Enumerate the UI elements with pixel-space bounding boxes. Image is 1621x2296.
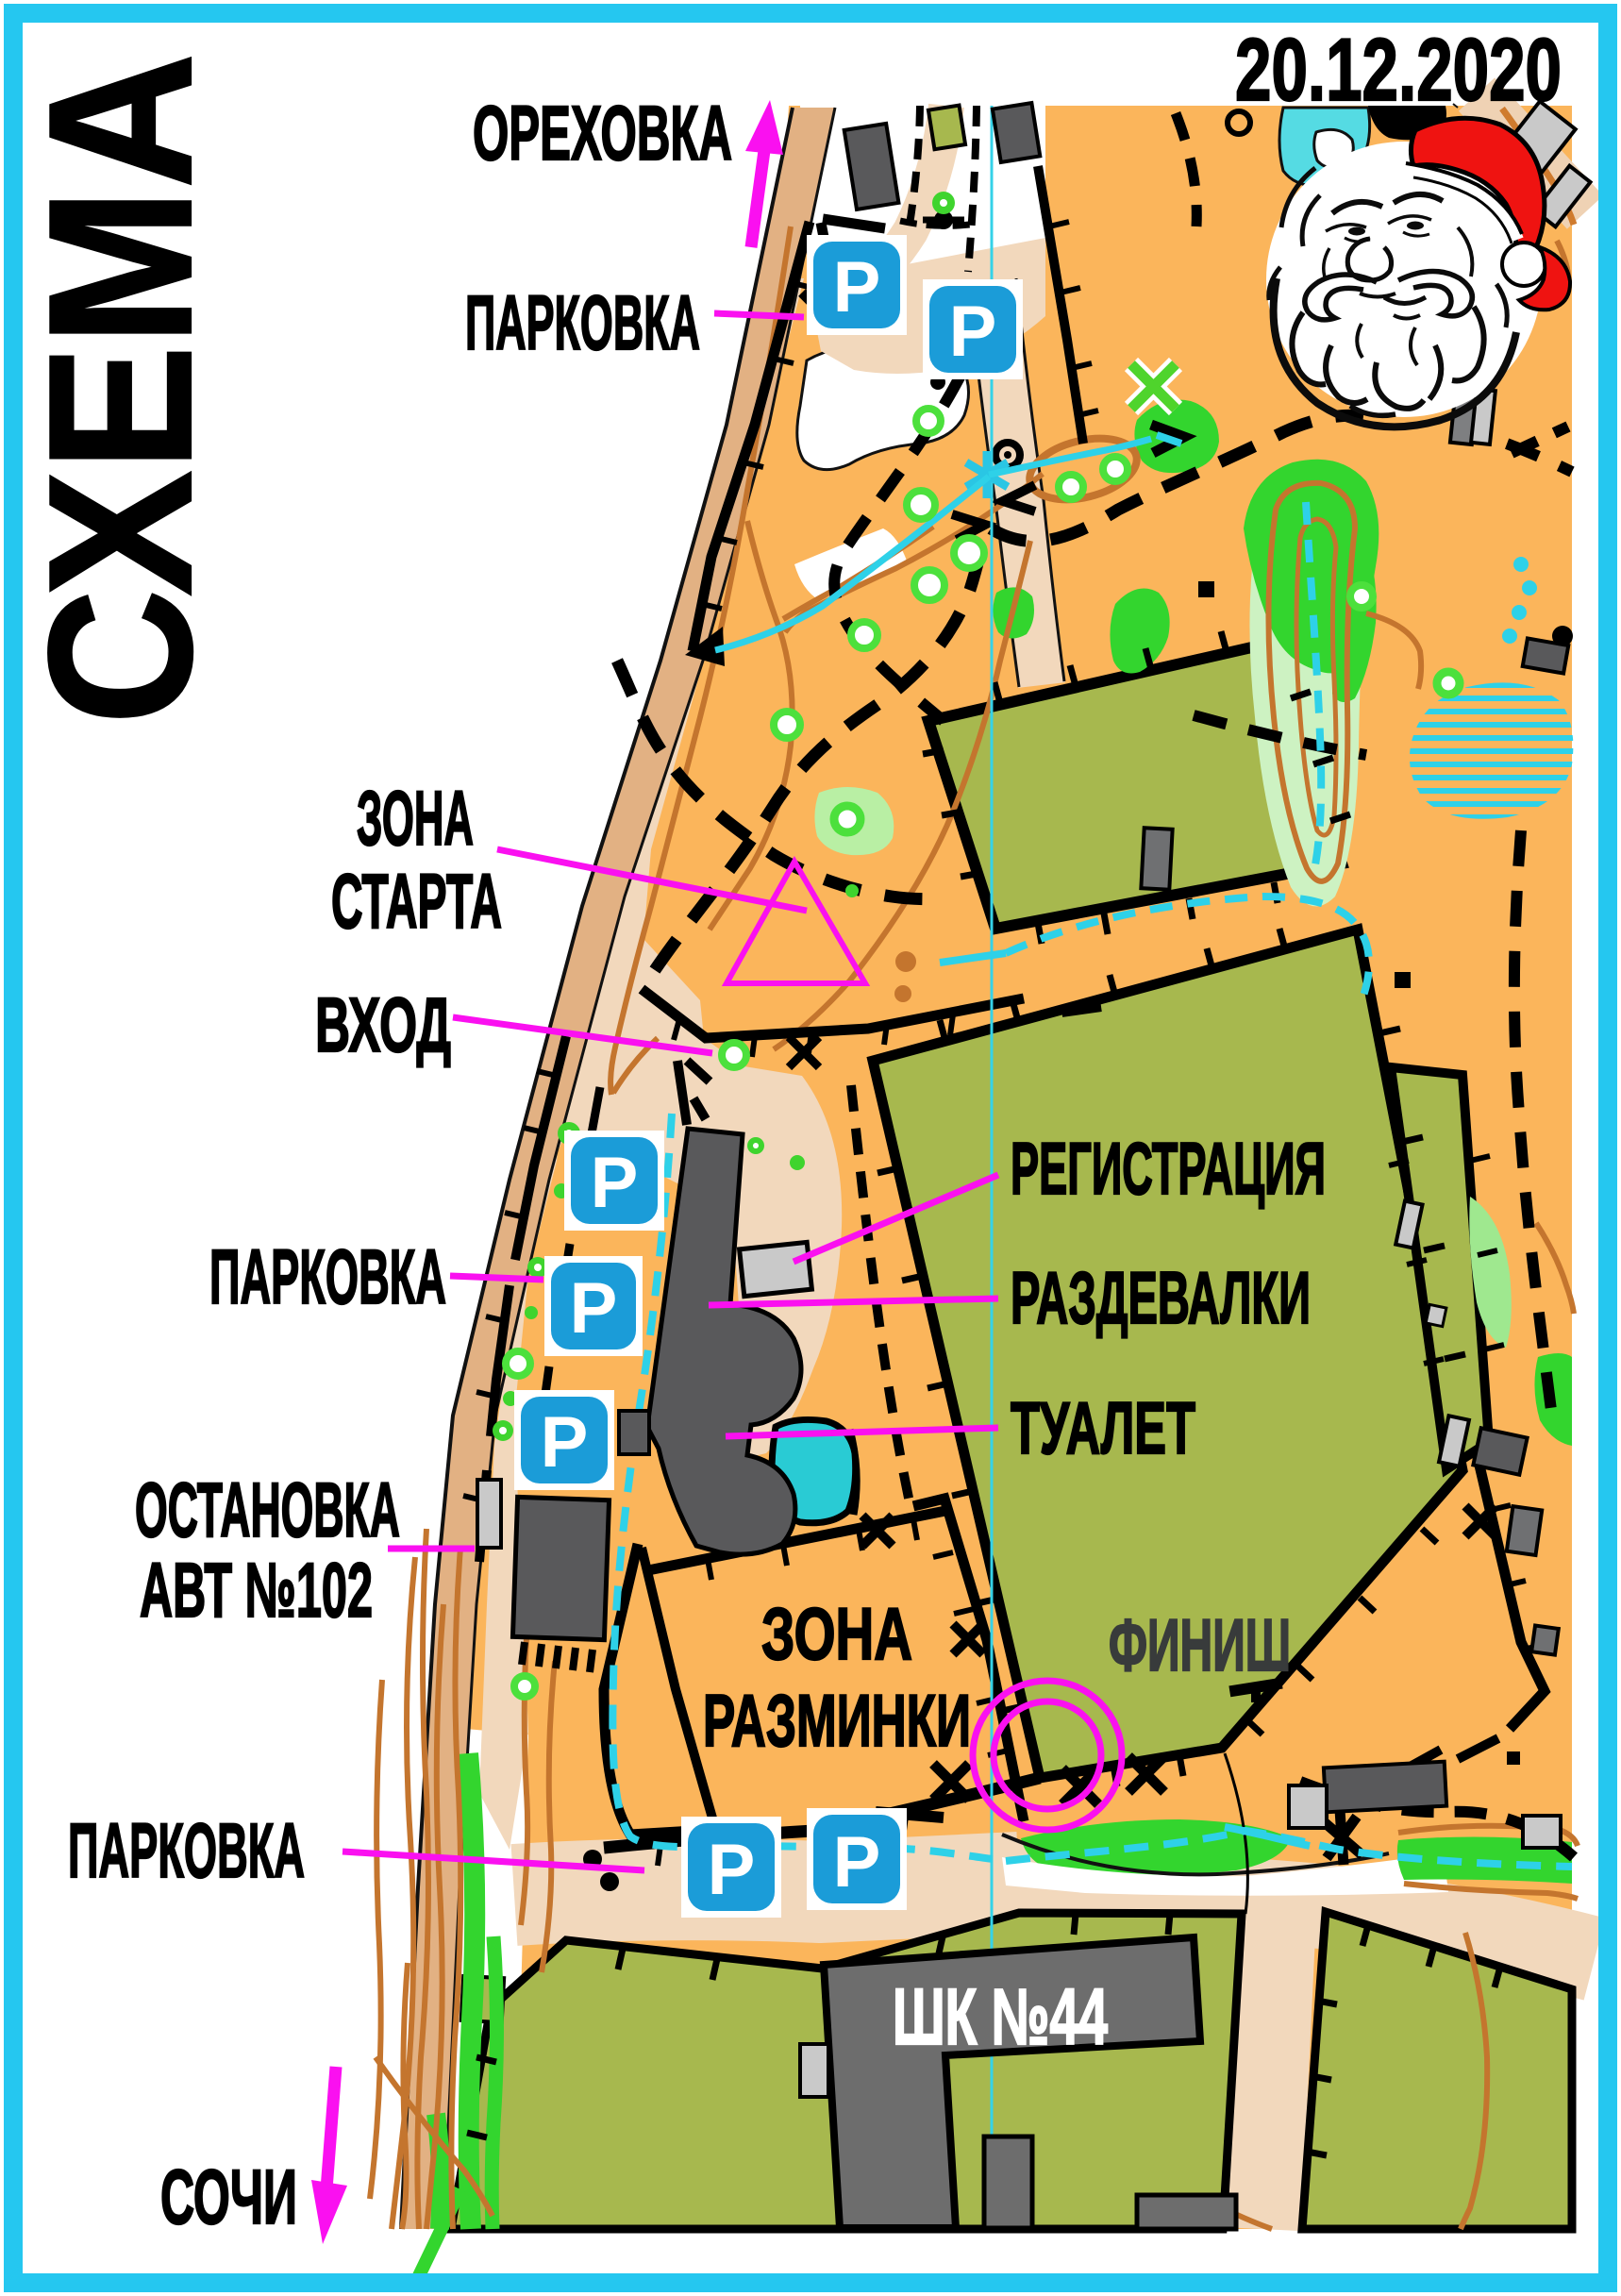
svg-text:ЗОНА: ЗОНА bbox=[761, 1592, 912, 1675]
svg-text:АВТ №102: АВТ №102 bbox=[140, 1548, 373, 1634]
svg-text:РЕГИСТРАЦИЯ: РЕГИСТРАЦИЯ bbox=[1011, 1127, 1326, 1210]
svg-text:ПАРКОВКА: ПАРКОВКА bbox=[209, 1234, 446, 1320]
svg-text:ПАРКОВКА: ПАРКОВКА bbox=[465, 280, 700, 366]
svg-text:ОСТАНОВКА: ОСТАНОВКА bbox=[135, 1467, 400, 1553]
svg-text:РАЗДЕВАЛКИ: РАЗДЕВАЛКИ bbox=[1011, 1256, 1311, 1339]
svg-text:СХЕМА: СХЕМА bbox=[6, 53, 234, 725]
svg-text:ЗОНА: ЗОНА bbox=[357, 776, 474, 862]
svg-text:20.12.2020: 20.12.2020 bbox=[1235, 20, 1562, 119]
svg-text:P: P bbox=[949, 292, 997, 372]
svg-text:ШК №44: ШК №44 bbox=[893, 1972, 1108, 2061]
svg-text:ФИНИШ: ФИНИШ bbox=[1109, 1603, 1291, 1686]
svg-text:P: P bbox=[833, 1822, 881, 1902]
svg-text:СОЧИ: СОЧИ bbox=[160, 2154, 297, 2240]
svg-text:P: P bbox=[591, 1143, 639, 1223]
svg-text:ОРЕХОВКА: ОРЕХОВКА bbox=[473, 91, 732, 176]
svg-text:РАЗМИНКИ: РАЗМИНКИ bbox=[703, 1679, 971, 1762]
svg-text:ПАРКОВКА: ПАРКОВКА bbox=[68, 1808, 305, 1894]
svg-text:СТАРТА: СТАРТА bbox=[331, 859, 502, 945]
svg-text:P: P bbox=[570, 1268, 618, 1349]
svg-text:P: P bbox=[833, 247, 881, 327]
svg-text:ТУАЛЕТ: ТУАЛЕТ bbox=[1011, 1386, 1195, 1469]
svg-text:P: P bbox=[541, 1402, 589, 1483]
svg-text:ВХОД: ВХОД bbox=[315, 982, 451, 1068]
svg-text:P: P bbox=[708, 1830, 756, 1910]
